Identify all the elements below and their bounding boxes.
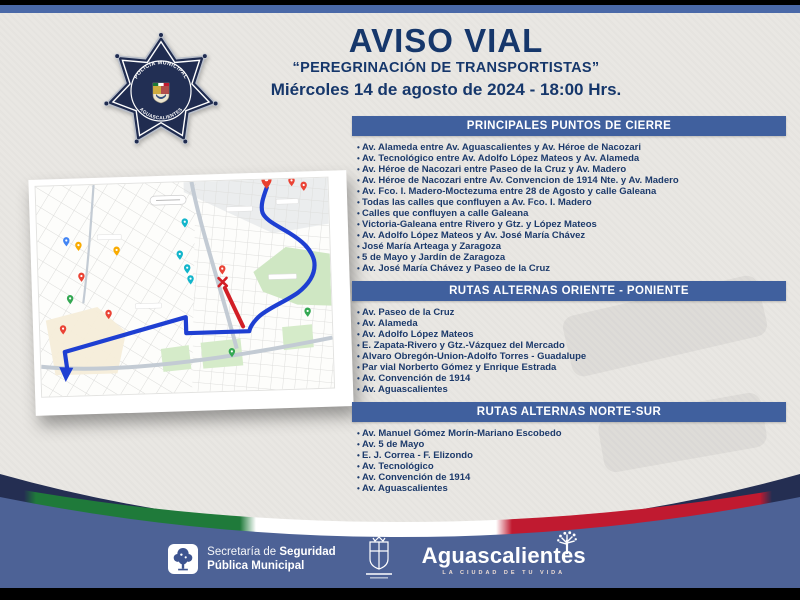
list-item: Av. Paseo de la Cruz xyxy=(357,307,786,318)
badge-crest-icon xyxy=(153,83,169,103)
list-item: Av. Tecnológico entre Av. Adolfo López M… xyxy=(357,153,786,164)
secretaria-line1-bold: Seguridad xyxy=(279,546,335,558)
list-item: Av. Tecnológico xyxy=(357,461,786,472)
top-blue-stripe xyxy=(0,5,800,13)
list-item: José María Arteaga y Zaragoza xyxy=(357,241,786,252)
closure-points-list: Av. Alameda entre Av. Aguascalientes y A… xyxy=(352,142,786,274)
header: AVISO VIAL “PEREGRINACIÓN DE TRANSPORTIS… xyxy=(236,24,656,100)
section-header-closures: PRINCIPALES PUNTOS DE CIERRE xyxy=(352,116,786,136)
list-item: Av. Aguascalientes xyxy=(357,384,786,395)
footer: Secretaría de Seguridad Pública Municipa… xyxy=(0,533,754,585)
list-item: Av. Fco. I. Madero-Moctezuma entre 28 de… xyxy=(357,186,786,197)
secretaria-line1-light: Secretaría de xyxy=(207,546,279,558)
section-header-east-west-routes: RUTAS ALTERNAS ORIENTE - PONIENTE xyxy=(352,281,786,301)
list-item: Av. Héroe de Nacozari entre Paseo de la … xyxy=(357,164,786,175)
content-sections: PRINCIPALES PUNTOS DE CIERRE Av. Alameda… xyxy=(352,116,786,501)
list-item: Av. Alameda entre Av. Aguascalientes y A… xyxy=(357,142,786,153)
page-title: AVISO VIAL xyxy=(236,24,656,58)
city-tagline: LA CIUDAD DE TU VIDA xyxy=(422,570,586,576)
list-item: Av. Convención de 1914 xyxy=(357,472,786,483)
list-item: Av. Convención de 1914 xyxy=(357,373,786,384)
list-item: Victoria-Galeana entre Rivero y Gtz. y L… xyxy=(357,219,786,230)
city-name: Aguascalientes xyxy=(422,543,586,569)
bottom-black-bar xyxy=(0,588,800,600)
list-item: Alvaro Obregón-Union-Adolfo Torres - Gua… xyxy=(357,351,786,362)
city-logo: Aguascalientes LA CIUDAD DE TU VIDA xyxy=(422,543,586,576)
traffic-advisory-poster: POLICÍA MUNICIPAL AGUASCALIENTES AVISO V… xyxy=(0,0,800,600)
north-south-routes-list: Av. Manuel Gómez Morín-Mariano Escobedo … xyxy=(352,428,786,494)
list-item: Av. Aguascalientes xyxy=(357,483,786,494)
list-item: Av. Héroe de Nacozari entre Av. Convenci… xyxy=(357,175,786,186)
list-item: Calles que confluyen a calle Galeana xyxy=(357,208,786,219)
list-item: Av. Manuel Gómez Morín-Mariano Escobedo xyxy=(357,428,786,439)
list-item: Av. Adolfo López Mateos y Av. José María… xyxy=(357,230,786,241)
east-west-routes-list: Av. Paseo de la Cruz Av. Alameda Av. Ado… xyxy=(352,307,786,395)
list-item: E. Zapata-Rivero y Gtz.-Vázquez del Merc… xyxy=(357,340,786,351)
police-badge-icon: POLICÍA MUNICIPAL AGUASCALIENTES xyxy=(99,29,223,153)
seven-point-star-icon: POLICÍA MUNICIPAL AGUASCALIENTES xyxy=(104,33,218,144)
page-subtitle: “PEREGRINACIÓN DE TRANSPORTISTAS” xyxy=(236,60,656,76)
secretaria-logo: Secretaría de Seguridad Pública Municipa… xyxy=(168,544,335,574)
list-item: Av. Adolfo López Mateos xyxy=(357,329,786,340)
list-item: Todas las calles que confluyen a Av. Fco… xyxy=(357,197,786,208)
tree-icon xyxy=(168,544,198,574)
list-item: Av. 5 de Mayo xyxy=(357,439,786,450)
route-map xyxy=(28,170,353,416)
municipal-crest-icon xyxy=(364,536,394,582)
map-canvas xyxy=(35,177,336,398)
list-item: 5 de Mayo y Jardín de Zaragoza xyxy=(357,252,786,263)
city-tree-icon xyxy=(556,530,578,554)
secretaria-line2: Pública Municipal xyxy=(207,559,335,573)
event-datetime: Miércoles 14 de agosto de 2024 - 18:00 H… xyxy=(236,80,656,100)
secretaria-label: Secretaría de Seguridad Pública Municipa… xyxy=(207,545,335,573)
list-item: Par vial Norberto Gómez y Enrique Estrad… xyxy=(357,362,786,373)
list-item: Av. Alameda xyxy=(357,318,786,329)
list-item: E. J. Correa - F. Elizondo xyxy=(357,450,786,461)
list-item: Av. José María Chávez y Paseo de la Cruz xyxy=(357,263,786,274)
section-header-north-south-routes: RUTAS ALTERNAS NORTE-SUR xyxy=(352,402,786,422)
